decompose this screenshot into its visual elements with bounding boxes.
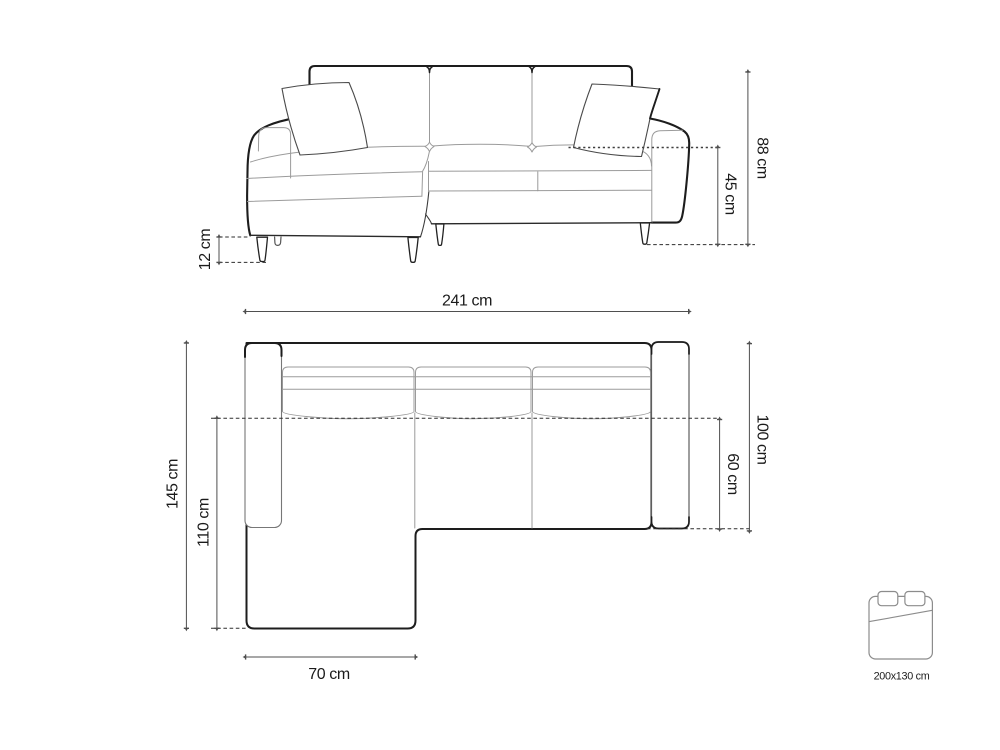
svg-text:12 cm: 12 cm <box>197 229 214 271</box>
svg-text:100 cm: 100 cm <box>753 414 770 464</box>
svg-text:60 cm: 60 cm <box>724 453 741 495</box>
svg-text:241 cm: 241 cm <box>442 293 492 310</box>
svg-text:70 cm: 70 cm <box>308 666 350 683</box>
svg-text:88 cm: 88 cm <box>753 137 770 179</box>
svg-text:200x130 cm: 200x130 cm <box>874 671 930 683</box>
svg-text:145 cm: 145 cm <box>165 459 182 509</box>
svg-text:45 cm: 45 cm <box>721 173 738 215</box>
svg-text:110 cm: 110 cm <box>196 498 213 547</box>
